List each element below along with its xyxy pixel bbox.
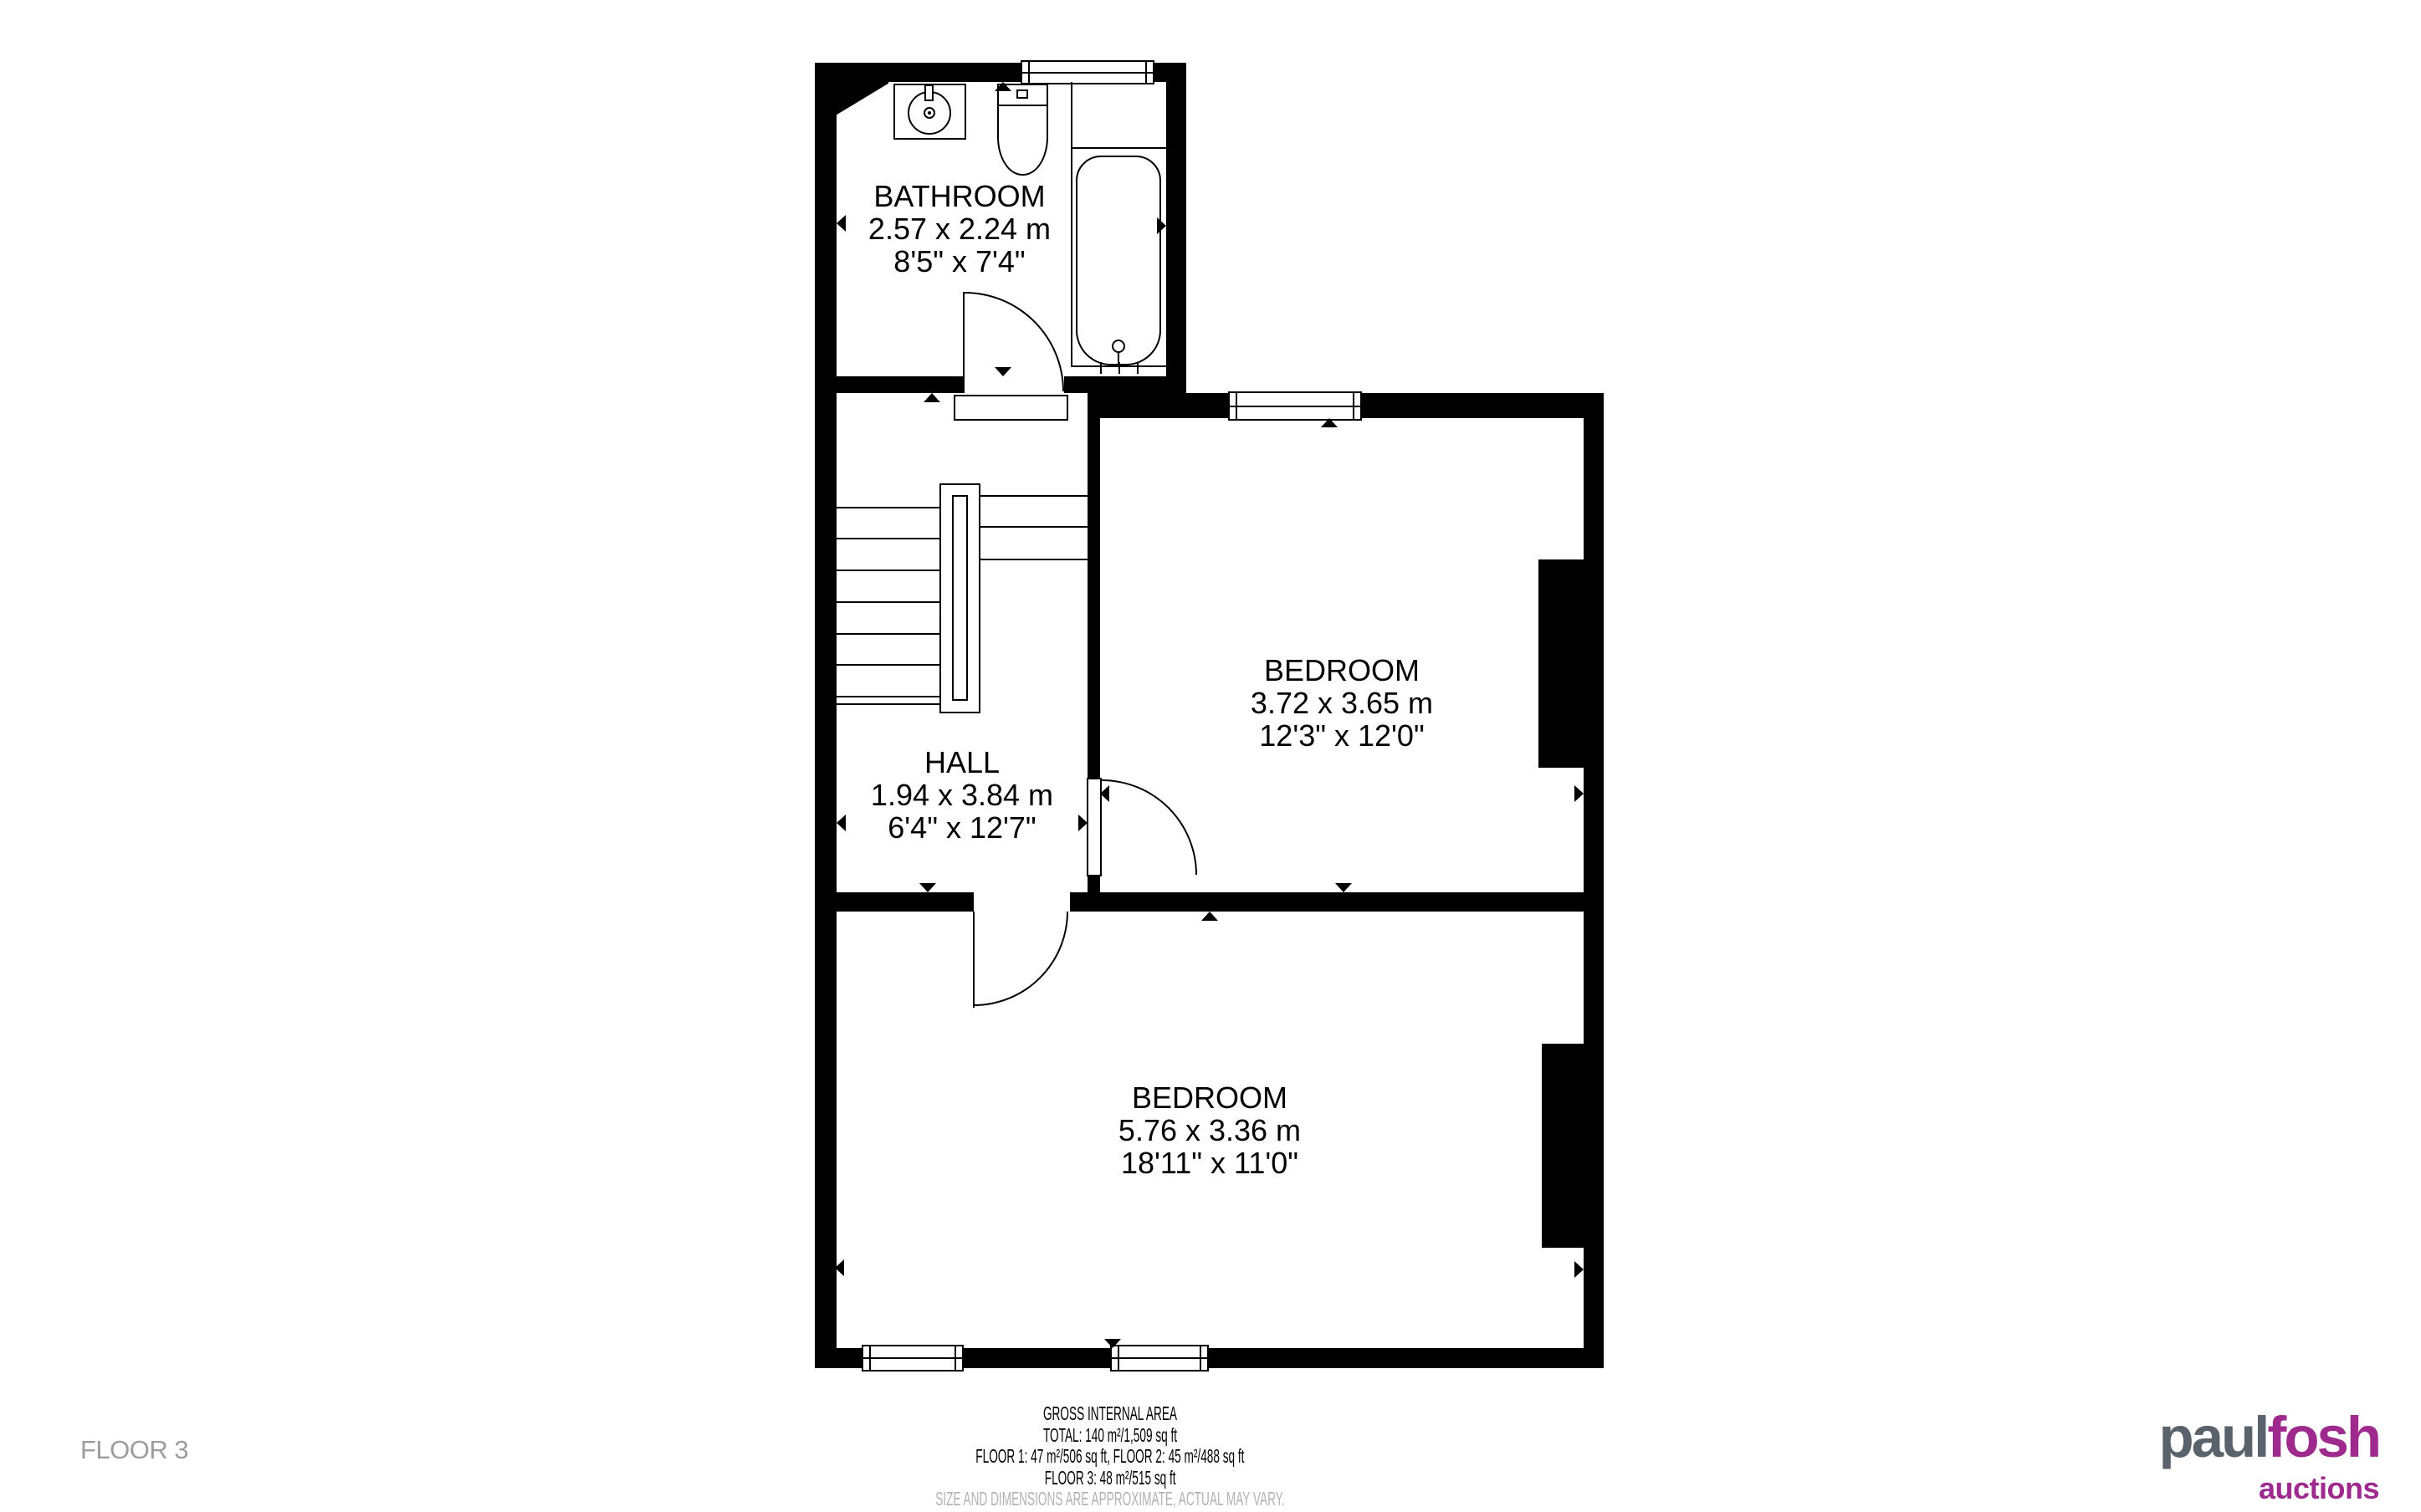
dimension-arrow-right-icon bbox=[1157, 217, 1166, 234]
dimension-arrow-down-icon bbox=[919, 883, 936, 892]
dimension-arrow-up-icon bbox=[995, 82, 1011, 91]
dimension-arrow-left-icon bbox=[835, 1259, 844, 1276]
window-bedroom2-right bbox=[1110, 1345, 1209, 1372]
tub-compartment-shelf bbox=[1071, 147, 1166, 149]
room-name: HALL bbox=[778, 746, 1146, 779]
logo-paul: paul bbox=[2159, 1405, 2268, 1469]
window-frame-cap bbox=[1118, 1346, 1119, 1370]
room-size-imperial: 8'5" x 7'4" bbox=[775, 245, 1144, 278]
gross-internal-area-title: GROSS INTERNAL AREA bbox=[734, 1403, 1487, 1425]
door-arc-bathroom bbox=[965, 292, 1064, 391]
stair-tread bbox=[980, 526, 1088, 528]
wall-right bbox=[1584, 393, 1604, 1368]
room-label-bathroom: BATHROOM 2.57 x 2.24 m 8'5" x 7'4" bbox=[775, 180, 1144, 278]
door-threshold-hall bbox=[954, 395, 1068, 421]
stair-rail bbox=[952, 495, 968, 701]
window-frame-cap bbox=[1236, 393, 1237, 419]
stair-tread bbox=[837, 696, 939, 697]
window-frame-cap bbox=[1200, 1346, 1201, 1370]
window-glass-line bbox=[1112, 1357, 1207, 1359]
floorplan-page: BATHROOM 2.57 x 2.24 m 8'5" x 7'4" HALL … bbox=[0, 0, 2421, 1512]
wall-bathroom-right bbox=[1166, 63, 1186, 418]
dimension-arrow-down-icon bbox=[995, 367, 1011, 376]
stair-tread bbox=[837, 507, 939, 508]
window-frame-cap bbox=[1145, 62, 1147, 83]
wall-hall-bottom bbox=[815, 892, 1604, 912]
logo-tagline: auctions bbox=[2159, 1474, 2380, 1504]
size-disclaimer: SIZE AND DIMENSIONS ARE APPROXIMATE, ACT… bbox=[734, 1489, 1487, 1510]
floor1-floor2-area: FLOOR 1: 47 m²/506 sq ft, FLOOR 2: 45 m²… bbox=[734, 1446, 1487, 1468]
stair-tread bbox=[837, 601, 939, 603]
stair-edge bbox=[837, 703, 939, 705]
dimension-arrow-up-icon bbox=[1201, 912, 1218, 921]
chimney-breast-bedroom1 bbox=[1538, 559, 1584, 768]
total-area: TOTAL: 140 m²/1,509 sq ft bbox=[734, 1425, 1487, 1447]
room-size-imperial: 12'3" x 12'0" bbox=[1158, 719, 1526, 752]
dimension-arrow-right-icon bbox=[1574, 785, 1584, 802]
tub-tap-tick bbox=[1100, 362, 1102, 374]
tub-tap-tick bbox=[1118, 362, 1120, 374]
room-size-imperial: 6'4" x 12'7" bbox=[778, 811, 1146, 844]
sink-drain-dot bbox=[928, 111, 931, 115]
stair-tread bbox=[980, 495, 1088, 497]
dimension-arrow-down-icon bbox=[1335, 883, 1352, 892]
floor-label: FLOOR 3 bbox=[80, 1435, 188, 1465]
room-label-hall: HALL 1.94 x 3.84 m 6'4" x 12'7" bbox=[778, 746, 1146, 844]
dimension-arrow-up-icon bbox=[924, 393, 940, 402]
logo-fosh: fosh bbox=[2267, 1405, 2379, 1469]
stair-tread bbox=[837, 570, 939, 571]
window-glass-line bbox=[863, 1357, 962, 1359]
stair-tread bbox=[980, 559, 1088, 560]
dimension-arrow-down-icon bbox=[1104, 1339, 1121, 1348]
wall-corner-pier bbox=[815, 63, 888, 115]
stair-tread bbox=[837, 664, 939, 666]
window-bathroom bbox=[1021, 60, 1154, 84]
toilet-bowl bbox=[997, 106, 1048, 176]
window-frame-cap bbox=[1353, 393, 1354, 419]
room-size-metric: 1.94 x 3.84 m bbox=[778, 779, 1146, 811]
room-size-metric: 3.72 x 3.65 m bbox=[1158, 687, 1526, 719]
sink-tap bbox=[924, 84, 934, 101]
window-frame-cap bbox=[869, 1346, 871, 1370]
window-frame-cap bbox=[955, 1346, 956, 1370]
room-name: BATHROOM bbox=[775, 180, 1144, 212]
room-size-metric: 2.57 x 2.24 m bbox=[775, 212, 1144, 245]
room-label-bedroom2: BEDROOM 5.76 x 3.36 m 18'11" x 11'0" bbox=[1026, 1081, 1394, 1179]
room-size-metric: 5.76 x 3.36 m bbox=[1026, 1114, 1394, 1147]
tub-tap-tick bbox=[1137, 362, 1139, 374]
room-name: BEDROOM bbox=[1158, 654, 1526, 687]
logo-wordmark: paulfosh bbox=[2159, 1408, 2380, 1466]
room-size-imperial: 18'11" x 11'0" bbox=[1026, 1147, 1394, 1179]
dimension-arrow-up-icon bbox=[1321, 418, 1338, 427]
toilet-flush-button bbox=[1016, 89, 1028, 99]
window-glass-line bbox=[1022, 72, 1153, 74]
window-bedroom2-left bbox=[862, 1345, 964, 1372]
door-opening-bedroom2 bbox=[974, 892, 1070, 912]
window-glass-line bbox=[1230, 406, 1360, 407]
room-label-bedroom1: BEDROOM 3.72 x 3.65 m 12'3" x 12'0" bbox=[1158, 654, 1526, 752]
window-frame-cap bbox=[1028, 62, 1030, 83]
room-name: BEDROOM bbox=[1026, 1081, 1394, 1114]
floor3-area: FLOOR 3: 48 m²/515 sq ft bbox=[734, 1468, 1487, 1489]
chimney-breast-bedroom2 bbox=[1542, 1044, 1584, 1248]
window-bedroom1 bbox=[1228, 391, 1362, 421]
stair-tread bbox=[837, 633, 939, 635]
dimension-arrow-right-icon bbox=[1574, 1261, 1584, 1278]
paul-fosh-auctions-logo: paulfosh auctions bbox=[2159, 1408, 2380, 1504]
stair-tread bbox=[837, 538, 939, 539]
door-arc-bedroom2 bbox=[974, 912, 1068, 1006]
